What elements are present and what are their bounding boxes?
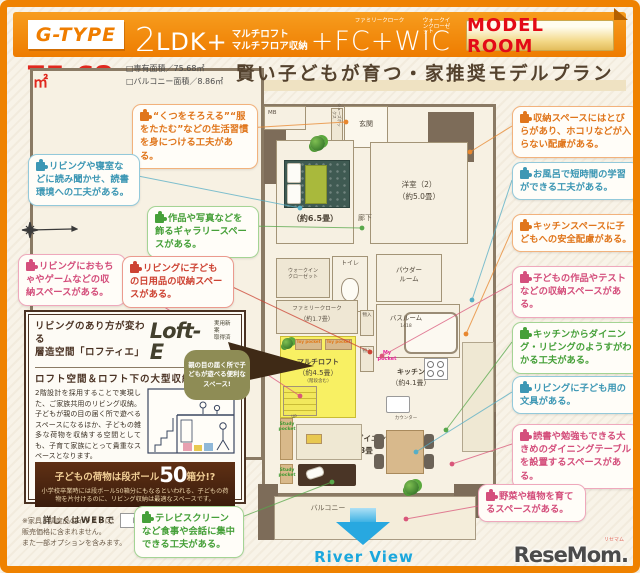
puzzle-icon — [140, 112, 149, 121]
callout-tv-screen: テレビスクリーンなど食事や会話に集中できる工夫がある。 — [134, 506, 244, 558]
page-title: 賢い子どもが育つ・家推奨モデルプラン — [236, 60, 628, 86]
label-bath: バスルーム — [376, 314, 436, 323]
callout-plants: 野菜や植物を育てるスペースがある。 — [478, 484, 586, 522]
label-mb: MB — [268, 110, 277, 117]
plan-ldk: LDK+ — [156, 30, 228, 55]
advertisement-page: G-TYPE 2 LDK+ マルチロフト マルチフロア収納 ファミリークローク … — [0, 0, 640, 573]
river-arrow-shaft — [350, 508, 376, 522]
dining-table — [386, 430, 424, 474]
puzzle-icon — [520, 384, 529, 393]
resemom-logo: リセマム ReseMom. — [514, 536, 628, 567]
label-counter: カウンター — [388, 416, 424, 422]
plant-icon — [282, 338, 293, 349]
label-river-view: River View — [296, 548, 432, 566]
lofte-banner: 子どもの荷物は段ボール50箱分!? 小学校卒業時には段ボール50箱分にもなるとい… — [35, 462, 235, 507]
puzzle-icon — [26, 262, 35, 271]
callout-reading: リビングや寝室などに読み聞かせ、読書環境への工夫がある。 — [28, 154, 140, 206]
label-multi-loft-note: （階段含む） — [284, 379, 352, 385]
callout-text: お風呂で短時間の学習ができる工夫がある。 — [520, 169, 626, 193]
callout-bath-study: お風呂で短時間の学習ができる工夫がある。 — [512, 162, 640, 200]
label-bedroom-size: （約6.5畳） — [282, 214, 348, 225]
puzzle-icon — [155, 214, 164, 223]
label-hallway: 廊下 — [350, 214, 380, 223]
callout-text: 読書や勉強もできる大きめのダイニングテーブルを設置するスペースがある。 — [520, 431, 631, 482]
plant-icon — [404, 480, 419, 495]
puzzle-icon — [486, 492, 495, 501]
puzzle-icon — [520, 114, 529, 123]
model-room-badge: MODEL ROOM — [466, 20, 614, 51]
lofte-heading: リビングのあり方が変わる 層造空間「ロフティエ」 — [35, 321, 150, 359]
corner-fold — [614, 8, 628, 20]
disclaimer-note: ※家具・調度品のイラストは、 販売価格に含まれません。 また一部オプションを含み… — [22, 516, 126, 550]
label-toilet: トイレ — [336, 260, 364, 268]
puzzle-icon — [520, 330, 529, 339]
banner-post: 箱分!? — [186, 472, 215, 483]
label-western-room: 洋室（2） — [386, 180, 452, 190]
lofte-panel: リビングのあり方が変わる 層造空間「ロフティエ」 Loft-E 実用新案 取得済… — [24, 310, 246, 504]
puzzle-icon — [520, 170, 529, 179]
banner-pre: 子どもの荷物は段ボール — [55, 472, 160, 483]
banner-number: 50 — [159, 463, 186, 487]
stairs — [283, 386, 317, 416]
plan-fcwic: ファミリークローク ウォークインクローゼット +FC+WIC — [311, 20, 451, 55]
puzzle-icon — [36, 162, 45, 171]
label-entrance: 玄関 — [348, 120, 384, 129]
callout-text: リビングや寝室などに読み聞かせ、読書環境への工夫がある。 — [36, 161, 129, 198]
callout-daily-goods: リビングに子どもの日用品の収納スペースがある。 — [122, 256, 234, 308]
puzzle-icon — [520, 432, 529, 441]
callout-text: リビングにおもちゃやゲームなどの収納スペースがある。 — [26, 261, 113, 298]
logo-text: ReseMom. — [514, 543, 628, 567]
blanket — [305, 165, 327, 204]
callout-text: キッチンからダイニング・リビングのようすがわかる工夫がある。 — [520, 329, 632, 366]
area-legend: □専有面積／75.68㎡ □バルコニー面積／8.86㎡ — [126, 63, 223, 89]
river-arrow-icon — [336, 522, 390, 545]
label-toy-pocket-2: Toy pocket — [325, 340, 352, 344]
callout-text: テレビスクリーンなど食事や会話に集中できる工夫がある。 — [142, 513, 235, 550]
label-kitchen: キッチン — [378, 368, 444, 377]
plant-icon — [310, 136, 325, 151]
callout-habit: “くつをそろえる”“服をたたむ”などの生活習慣を身につける工夫がある。 — [132, 104, 258, 169]
callout-text: 収納スペースにはとびらがあり、ホコリなどが入らない配慮がある。 — [520, 113, 631, 150]
puzzle-icon — [520, 274, 529, 283]
label-study-pocket-2: Study pocket — [272, 468, 302, 479]
label-western-room-size: （約5.0畳） — [386, 192, 452, 202]
label-multi-loft-size: （約4.5畳） — [284, 369, 352, 378]
label-shoe-box: シューズボックス — [332, 102, 342, 128]
plan-number: 2 — [135, 24, 156, 55]
pillow — [287, 163, 301, 183]
chair — [424, 434, 434, 449]
callout-storage-doors: 収納スペースにはとびらがあり、ホコリなどが入らない配慮がある。 — [512, 106, 640, 158]
label-study-pocket-1: Study pocket — [272, 422, 302, 433]
callout-text: 野菜や植物を育てるスペースがある。 — [486, 491, 573, 515]
label-storage-2: 物入 — [361, 349, 373, 355]
label-kitchen-size: （約4.1畳） — [378, 379, 444, 388]
plan-spec: 2 LDK+ マルチロフト マルチフロア収納 ファミリークローク ウォークインク… — [135, 17, 451, 55]
label-family-cloak: ファミリークローク — [278, 306, 356, 313]
header-band: G-TYPE 2 LDK+ マルチロフト マルチフロア収納 ファミリークローク … — [13, 12, 626, 57]
banner-body: 小学校卒業時には段ボール50箱分にもなるといわれる、子どもの荷物を片付けるのに、… — [35, 488, 235, 505]
puzzle-icon — [520, 222, 529, 231]
callout-kitchen-view: キッチンからダイニング・リビングのようすがわかる工夫がある。 — [512, 322, 640, 374]
pillow — [287, 184, 301, 204]
compass-icon — [20, 220, 78, 240]
type-label: G-TYPE — [28, 20, 124, 49]
chair — [374, 434, 384, 449]
floor-plan: MB 玄関 シューズボックス （約6.5畳） 洋室（2） （約5.0畳） 廊下 … — [258, 96, 508, 568]
wic-ruby: ウォークインクローゼット — [423, 19, 451, 36]
label-my-pocket: My pocket — [374, 350, 400, 362]
callout-toys: リビングにおもちゃやゲームなどの収納スペースがある。 — [18, 254, 126, 306]
label-multi-loft: マルチロフト — [284, 358, 352, 367]
plan-extra: マルチロフト マルチフロア収納 — [232, 29, 308, 52]
callout-text: “くつをそろえる”“服をたたむ”などの生活習慣を身につける工夫がある。 — [140, 111, 248, 162]
toilet-icon — [341, 278, 359, 302]
plan-extra-1: マルチロフト — [232, 29, 308, 40]
island-item — [306, 434, 322, 444]
callout-text: キッチンスペースに子どもへの安全配慮がある。 — [520, 221, 632, 245]
callout-text: 作品や写真などを飾るギャラリースペースがある。 — [155, 213, 247, 250]
label-family-cloak-size: （約1.7畳） — [278, 316, 356, 324]
loft-badge: 親の目の届く所で子どもが遊べる便利なスペース! — [184, 350, 250, 400]
label-balcony: バルコニー — [298, 504, 358, 513]
chair — [374, 454, 384, 469]
label-wic: ウォークイン クローゼット — [278, 268, 328, 281]
label-toy-pocket-1: Toy pocket — [295, 340, 322, 344]
lofte-patent: 実用新案 取得済 — [214, 321, 235, 342]
chair — [424, 454, 434, 469]
callout-dining-table: 読書や勉強もできる大きめのダイニングテーブルを設置するスペースがある。 — [512, 424, 640, 489]
fc-ruby: ファミリークローク — [355, 19, 405, 25]
label-bath-size: 1418 — [386, 324, 426, 330]
puzzle-icon — [130, 264, 139, 273]
callout-text: リビングに子ども用の文具がある。 — [520, 383, 626, 407]
callout-kitchen-safety: キッチンスペースに子どもへの安全配慮がある。 — [512, 214, 640, 252]
label-powder: パウダー ルーム — [384, 266, 434, 284]
callout-works-storage: 子どもの作品やテストなどの収納スペースがある。 — [512, 266, 640, 318]
sink-icon — [386, 396, 410, 413]
label-storage-1: 物入 — [361, 313, 373, 319]
plan-extra-2: マルチフロア収納 — [232, 41, 308, 52]
callout-stationery: リビングに子ども用の文具がある。 — [512, 376, 640, 414]
area-size: 75.68㎡ — [26, 60, 113, 94]
callout-text: リビングに子どもの日用品の収納スペースがある。 — [130, 263, 222, 300]
logo-ruby: リセマム — [514, 536, 624, 543]
kitchen-counter — [462, 342, 494, 452]
callout-text: 子どもの作品やテストなどの収納スペースがある。 — [520, 273, 626, 310]
puzzle-icon — [142, 514, 151, 523]
callout-gallery: 作品や写真などを飾るギャラリースペースがある。 — [147, 206, 259, 258]
lofte-body: 2階設計を採用することで実現した、ご家族共用のリビング収納。子どもが親の目の届く… — [35, 388, 141, 462]
